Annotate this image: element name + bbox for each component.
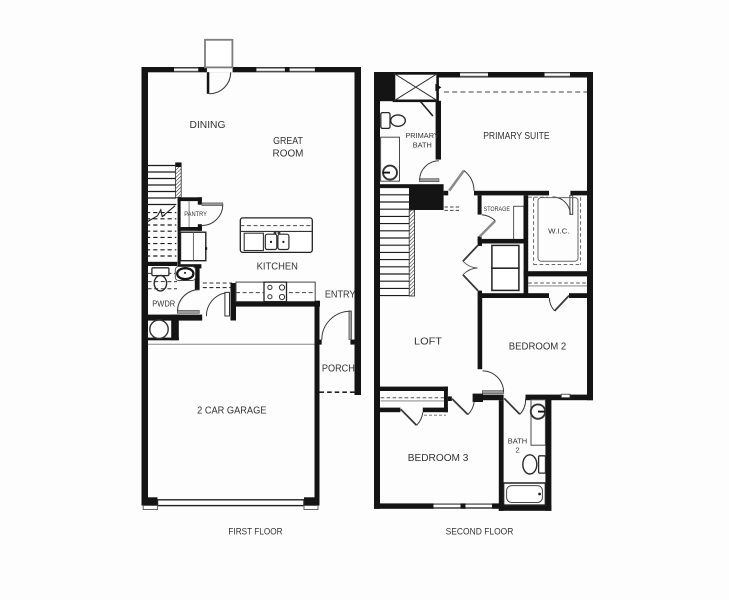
svg-text:BATH: BATH	[413, 141, 432, 150]
svg-text:BEDROOM 3: BEDROOM 3	[408, 453, 469, 464]
svg-text:PRIMARY: PRIMARY	[405, 131, 438, 140]
svg-text:SECOND FLOOR: SECOND FLOOR	[446, 525, 514, 536]
svg-text:STORAGE: STORAGE	[484, 206, 510, 213]
svg-text:LOFT: LOFT	[414, 337, 442, 348]
svg-text:BATH: BATH	[508, 437, 528, 446]
svg-text:PORCH: PORCH	[322, 364, 355, 375]
svg-text:PRIMARY SUITE: PRIMARY SUITE	[483, 131, 550, 142]
svg-text:PANTRY: PANTRY	[184, 211, 207, 218]
svg-text:FIRST FLOOR: FIRST FLOOR	[228, 525, 282, 536]
svg-text:GREAT: GREAT	[273, 136, 303, 147]
svg-text:ENTRY: ENTRY	[325, 289, 356, 300]
svg-text:ROOM: ROOM	[273, 148, 304, 159]
svg-text:W.I.C.: W.I.C.	[548, 227, 569, 236]
svg-text:DINING: DINING	[190, 120, 226, 131]
svg-text:2: 2	[515, 446, 519, 455]
svg-text:2 CAR GARAGE: 2 CAR GARAGE	[197, 406, 267, 417]
svg-text:BEDROOM 2: BEDROOM 2	[509, 341, 567, 352]
svg-text:PWDR: PWDR	[152, 300, 175, 309]
svg-text:KITCHEN: KITCHEN	[257, 262, 298, 273]
